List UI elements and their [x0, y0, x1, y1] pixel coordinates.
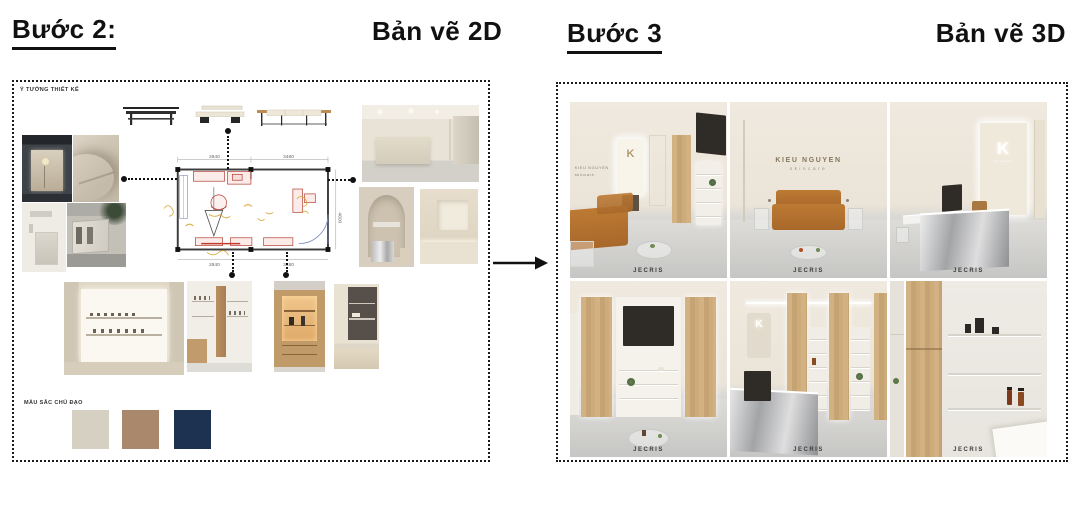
- wall-sign-sub: skincare: [575, 172, 610, 178]
- panel-3d-renders: KIEU NGUYEN skincare K JECRIS KIEU: [556, 82, 1068, 462]
- glass-logo-panel: K: [747, 313, 771, 359]
- white-shelf-wall: [942, 281, 1047, 457]
- plant: [627, 378, 635, 386]
- wood-seam: [906, 348, 942, 350]
- plant: [893, 378, 899, 384]
- palette-label: MÀU SẮC CHỦ ĐẠO: [24, 400, 83, 406]
- sofa-back: [597, 192, 633, 215]
- shelf-line: [890, 334, 904, 335]
- reference-storefront-white: [22, 203, 66, 272]
- reference-interior-reception-wide: [362, 105, 479, 182]
- brand-name-text: KIEU NGUYEN: [730, 157, 887, 164]
- callout-line-bottom-1: [232, 252, 234, 272]
- callout-dot-bottom-2: [283, 272, 289, 278]
- wall-lamp-right: [846, 199, 849, 202]
- glass-side-table-left: [754, 208, 770, 231]
- side-cabinet-sliver: [570, 313, 579, 415]
- watermark: JECRIS: [570, 447, 727, 453]
- door-outline: [649, 135, 666, 205]
- cove-light: [746, 302, 872, 304]
- table-decor-1: [799, 248, 803, 252]
- mirror-reception-desk: [920, 209, 1009, 272]
- watermark: JECRIS: [890, 268, 1047, 274]
- wood-cabinet: [672, 135, 691, 223]
- reference-bench-dark: [120, 101, 182, 128]
- adjacent-view-sliver: [890, 281, 904, 457]
- callout-dot-top: [225, 128, 231, 134]
- reference-shop-wood-column: [187, 281, 252, 372]
- step3-label: Bước 3: [567, 18, 662, 54]
- render-shelf-closeup: JECRIS: [890, 281, 1047, 457]
- callout-line-right: [328, 179, 350, 181]
- reference-bench-cream: [188, 101, 250, 129]
- render-tv-wall: JECRIS: [570, 281, 727, 457]
- step2-title-2d: Bản vẽ 2D: [372, 16, 502, 47]
- acrylic-stool: [896, 227, 909, 243]
- callout-dot-left: [121, 176, 127, 182]
- callout-line-left: [128, 178, 177, 180]
- brand-signage: KIEU NGUYEN skincare: [730, 157, 887, 171]
- wood-column: [906, 281, 942, 457]
- dim-bottom-right: 3480: [283, 262, 294, 268]
- watermark: JECRIS: [730, 447, 887, 453]
- wood-panel-right: [685, 297, 716, 417]
- reference-backlit-display-wall: [64, 282, 184, 375]
- reference-bench-daybed: [254, 104, 334, 129]
- palette-swatch-beige: [72, 410, 109, 449]
- shelf-3: [948, 408, 1041, 410]
- tv-screen: [696, 113, 726, 157]
- white-shelf-unit: [696, 162, 721, 225]
- bottle-cap-2: [1018, 388, 1024, 391]
- reference-storefront-street: [67, 203, 126, 267]
- dim-top-left: 2840: [209, 154, 220, 160]
- glass-door-edge: [743, 120, 745, 222]
- process-arrow-icon: [491, 254, 549, 272]
- render-brand-wall-sofa: KIEU NGUYEN skincare JECRIS: [730, 102, 887, 278]
- bottle-cap-1: [1007, 387, 1012, 390]
- dim-top-right: 3480: [283, 154, 294, 160]
- palette-swatch-brown: [122, 410, 159, 449]
- step3-title-3d: Bản vẽ 3D: [936, 18, 1066, 49]
- callout-dot-bottom-1: [229, 272, 235, 278]
- render-reception-pillars: K JECRIS: [730, 281, 887, 457]
- wood-pillar-2: [829, 293, 849, 420]
- render-lobby-sofas: KIEU NGUYEN skincare K JECRIS: [570, 102, 727, 278]
- brand-logo-k: K: [617, 148, 644, 160]
- reference-storefront-dark: [22, 135, 72, 202]
- brand-logo-k: K: [980, 139, 1027, 159]
- shelf-strip-2: [851, 327, 870, 411]
- black-box-2: [975, 318, 984, 333]
- concept-label: Ý TƯỞNG THIẾT KẾ: [20, 87, 79, 93]
- reference-curved-wall: [73, 135, 119, 202]
- callout-line-top: [227, 136, 229, 169]
- wall-lamp-left: [768, 199, 771, 202]
- brand-sub-text: skincare: [730, 166, 887, 171]
- glass-coffee-table: [628, 429, 669, 448]
- table-decor-1: [642, 430, 646, 436]
- plant: [856, 373, 863, 380]
- glass-side-table-right: [848, 208, 864, 231]
- black-box-3: [992, 327, 999, 334]
- panel-2d-moodboard: Ý TƯỞNG THIẾT KẾ: [12, 80, 490, 462]
- reference-dark-shelf-unit: [334, 284, 379, 369]
- reference-wood-cabinet-backlit: [274, 281, 325, 372]
- wood-panel-left: [581, 297, 612, 417]
- tv-screen: [623, 306, 673, 346]
- desk-monitor: [744, 371, 771, 401]
- wood-pillar-3: [874, 293, 887, 420]
- floor-plan-sketch: 2840 3480 2840 3480 4600: [150, 150, 346, 269]
- brand-logo-k: K: [747, 319, 771, 330]
- desk-monitor: [942, 184, 962, 212]
- reference-interior-niche: [420, 189, 478, 264]
- render-grid: KIEU NGUYEN skincare K JECRIS KIEU: [570, 102, 1047, 457]
- logo-sub-text: skincare: [980, 159, 1027, 163]
- callout-dot-right: [350, 177, 356, 183]
- step2-label: Bước 2:: [12, 14, 116, 50]
- dim-right: 4600: [337, 212, 343, 223]
- wall-sign-text: KIEU NGUYEN skincare: [575, 165, 610, 178]
- sofa-seat: [772, 204, 844, 230]
- table-decor-2: [658, 434, 662, 438]
- acrylic-side-table: [570, 241, 594, 267]
- reference-interior-arch: [359, 187, 414, 267]
- wall-sign-brand: KIEU NGUYEN: [575, 165, 610, 171]
- amber-bottle-2: [1018, 392, 1024, 406]
- render-reception-logo: K skincare JECRIS: [890, 102, 1047, 278]
- backlit-logo-panel: K: [617, 139, 644, 194]
- dim-bottom-left: 2840: [209, 262, 220, 268]
- door-frame: [1034, 120, 1045, 219]
- shelf-1: [948, 334, 1041, 336]
- palette-swatch-navy: [174, 410, 211, 449]
- watermark: JECRIS: [730, 268, 887, 274]
- shelf-bottle: [812, 358, 816, 365]
- watermark: JECRIS: [570, 268, 727, 274]
- amber-bottle-1: [1007, 390, 1012, 405]
- watermark: JECRIS: [890, 447, 1047, 453]
- black-box-1: [965, 324, 971, 333]
- shelf-2: [948, 373, 1041, 375]
- callout-line-bottom-2: [286, 252, 288, 272]
